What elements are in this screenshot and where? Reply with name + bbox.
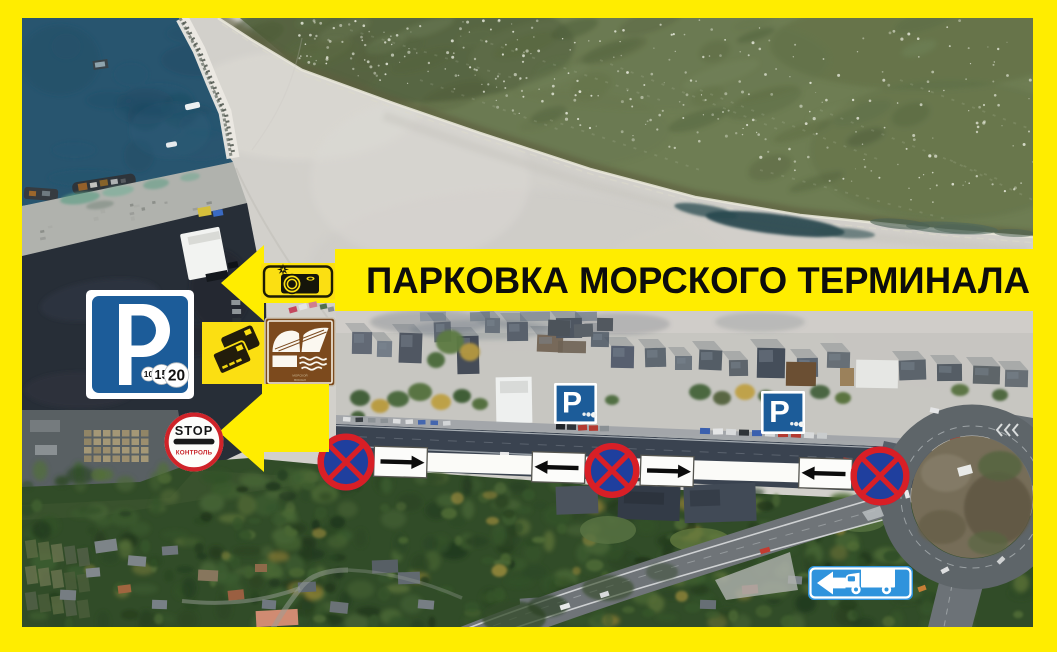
svg-text:ПАРКОВКА МОРСКОГО ТЕРМИНАЛА: ПАРКОВКА МОРСКОГО ТЕРМИНАЛА [366,260,1030,301]
svg-text:КОНТРОЛЬ: КОНТРОЛЬ [176,450,213,457]
svg-text:20: 20 [168,368,185,385]
svg-text:P: P [562,387,582,420]
svg-text:STOP: STOP [175,423,214,438]
svg-text:ВОКЗАЛ: ВОКЗАЛ [294,378,306,382]
svg-text:P: P [769,394,790,429]
